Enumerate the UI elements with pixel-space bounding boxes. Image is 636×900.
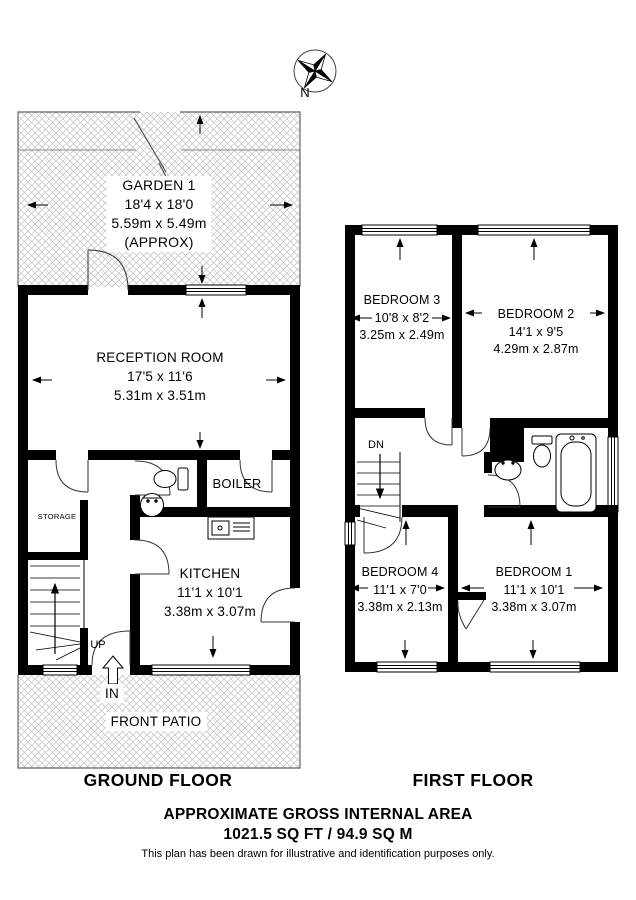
- room-name: BEDROOM 2: [493, 306, 578, 324]
- room-label-boiler: BOILER: [213, 474, 262, 493]
- room-label-bedroom3: BEDROOM 3 10'8 x 8'2 3.25m x 2.49m: [359, 292, 444, 345]
- room-dims-imperial: 11'1 x 7'0: [357, 582, 442, 600]
- room-name: KITCHEN: [164, 564, 256, 583]
- room-dims-imperial: 18'4 x 18'0: [111, 195, 206, 214]
- room-label-storage: STORAGE: [38, 512, 77, 521]
- floorplan-linework: [0, 0, 636, 900]
- sink-icon: [495, 460, 521, 480]
- room-dims-imperial: 11'1 x 10'1: [491, 582, 576, 600]
- room-dims-imperial: 14'1 x 9'5: [493, 324, 578, 342]
- room-label-bedroom4: BEDROOM 4 11'1 x 7'0 3.38m x 2.13m: [357, 564, 442, 617]
- room-dims-metric: 3.38m x 3.07m: [164, 602, 256, 621]
- room-dims-imperial: 10'8 x 8'2: [359, 310, 444, 328]
- footer-area-value: 1021.5 SQ FT / 94.9 SQ M: [223, 826, 412, 844]
- room-dims-imperial: 17'5 x 11'6: [96, 367, 223, 386]
- first-floor-title: FIRST FLOOR: [412, 770, 533, 791]
- room-label-bedroom1: BEDROOM 1 11'1 x 10'1 3.38m x 3.07m: [491, 564, 576, 617]
- room-name: BEDROOM 1: [491, 564, 576, 582]
- room-dims-metric: 3.38m x 3.07m: [491, 599, 576, 617]
- room-label-garden: GARDEN 1 18'4 x 18'0 5.59m x 5.49m (APPR…: [106, 176, 211, 252]
- room-dims-metric: 5.31m x 3.51m: [96, 386, 223, 405]
- stairs-down: [357, 452, 400, 528]
- room-dims-imperial: 11'1 x 10'1: [164, 583, 256, 602]
- ground-floor-title: GROUND FLOOR: [84, 770, 233, 791]
- room-dims-metric: 5.59m x 5.49m: [111, 214, 206, 233]
- stairs-up-label: UP: [90, 639, 105, 651]
- room-name: GARDEN 1: [111, 176, 206, 195]
- room-name: BEDROOM 3: [359, 292, 444, 310]
- footer-area-title: APPROXIMATE GROSS INTERNAL AREA: [163, 806, 472, 824]
- footer-disclaimer: This plan has been drawn for illustrativ…: [141, 848, 494, 860]
- sink-icon: [141, 494, 164, 517]
- room-label-front-patio: FRONT PATIO: [106, 712, 207, 731]
- room-dims-metric: 3.38m x 2.13m: [357, 599, 442, 617]
- stairs-up: [30, 566, 80, 660]
- kitchen-sink-icon: [208, 517, 254, 539]
- compass-north-label: N: [300, 85, 309, 100]
- room-dims-metric: 4.29m x 2.87m: [493, 341, 578, 359]
- room-label-reception: RECEPTION ROOM 17'5 x 11'6 5.31m x 3.51m: [96, 348, 223, 405]
- entrance-label: IN: [100, 684, 124, 703]
- room-dims-metric: 3.25m x 2.49m: [359, 327, 444, 345]
- compass-icon: [287, 43, 342, 98]
- room-name: RECEPTION ROOM: [96, 348, 223, 367]
- stairs-down-label: DN: [368, 439, 384, 451]
- floorplan-page: N GARDEN 1 18'4 x 18'0 5.59m x 5.49m (AP…: [0, 0, 636, 900]
- room-label-kitchen: KITCHEN 11'1 x 10'1 3.38m x 3.07m: [164, 564, 256, 621]
- bathtub-icon: [556, 434, 596, 512]
- toilet-icon: [154, 468, 188, 490]
- toilet-icon: [532, 436, 552, 467]
- room-label-bedroom2: BEDROOM 2 14'1 x 9'5 4.29m x 2.87m: [493, 306, 578, 359]
- room-approx-note: (APPROX): [111, 233, 206, 252]
- room-name: BEDROOM 4: [357, 564, 442, 582]
- cupboard-block: [490, 418, 524, 462]
